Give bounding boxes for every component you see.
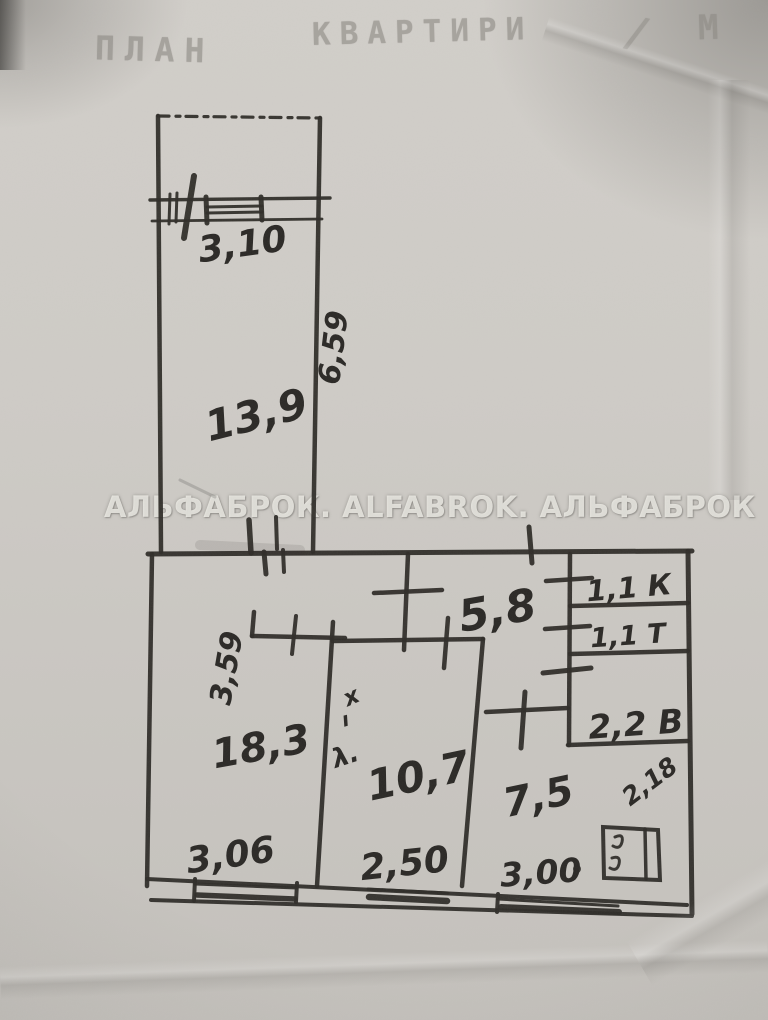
paper-grain-texture [0, 0, 768, 1020]
floor-plan-drawing: 3,10 13,9 6,59 3,59 18,3 10,7 5,8 7,5 1,… [0, 0, 768, 1020]
floor-plan-photo: ПЛАН КВАРТИРИ / М АЛЬФАБРОК. ALFABROK. А… [0, 0, 768, 1020]
